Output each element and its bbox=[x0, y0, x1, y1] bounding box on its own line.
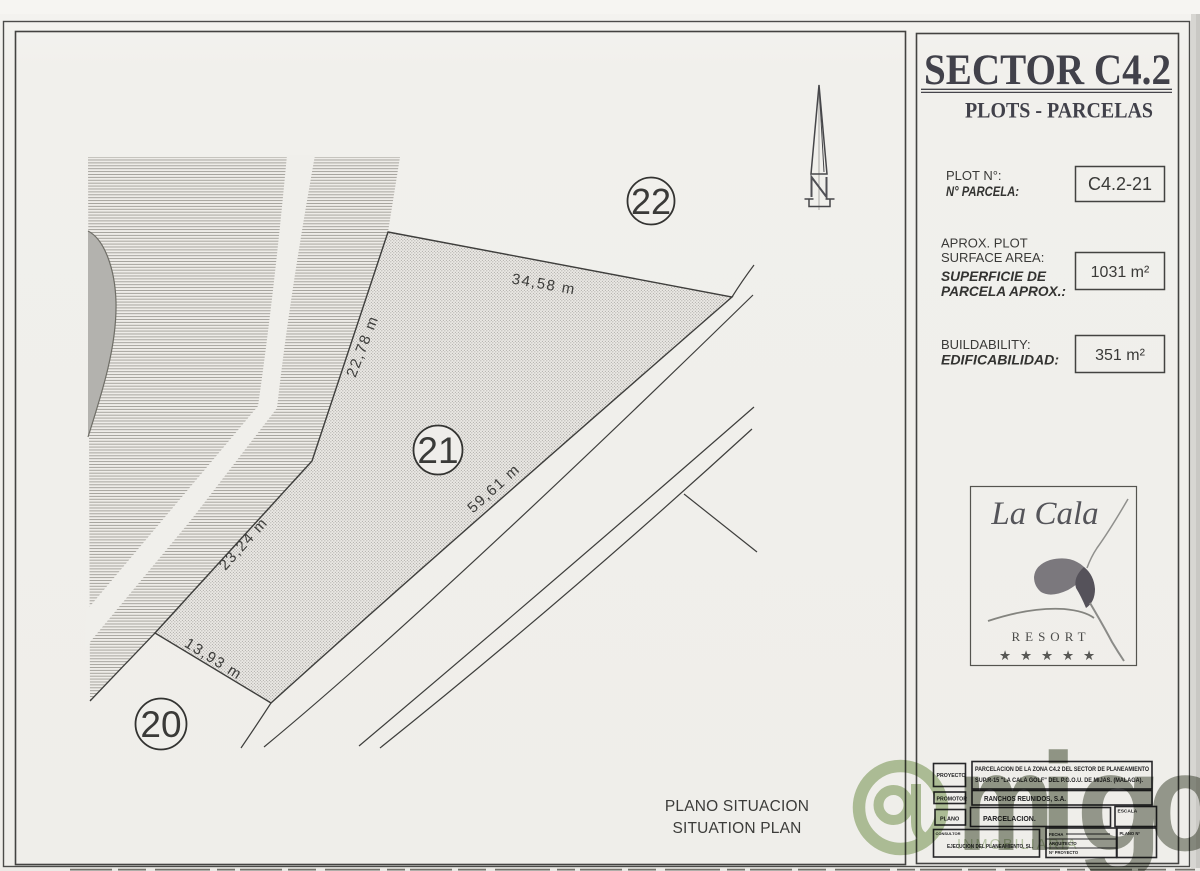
svg-text:★: ★ bbox=[1083, 648, 1095, 663]
svg-text:22: 22 bbox=[631, 181, 671, 222]
svg-text:SITUATION PLAN: SITUATION PLAN bbox=[672, 820, 801, 837]
svg-text:EDIFICABILIDAD:: EDIFICABILIDAD: bbox=[941, 352, 1059, 368]
svg-text:PARCELA APROX.:: PARCELA APROX.: bbox=[941, 283, 1066, 299]
svg-text:APROX. PLOT: APROX. PLOT bbox=[941, 236, 1028, 251]
svg-text:C4.2-21: C4.2-21 bbox=[1088, 174, 1152, 194]
svg-text:1031 m²: 1031 m² bbox=[1091, 264, 1150, 281]
svg-text:o: o bbox=[1148, 725, 1200, 871]
svg-text:PLOT N°:: PLOT N°: bbox=[946, 168, 1002, 183]
svg-text:PLOTS - PARCELAS: PLOTS - PARCELAS bbox=[965, 98, 1153, 123]
svg-text:SUPERFICIE DE: SUPERFICIE DE bbox=[941, 268, 1047, 284]
svg-text:★: ★ bbox=[1062, 648, 1074, 663]
svg-text:SECTOR C4.2: SECTOR C4.2 bbox=[924, 47, 1171, 94]
svg-text:★: ★ bbox=[999, 648, 1011, 663]
svg-text:351 m²: 351 m² bbox=[1095, 347, 1145, 364]
svg-text:★: ★ bbox=[1020, 648, 1032, 663]
svg-text:21: 21 bbox=[417, 430, 458, 471]
svg-text:SURFACE AREA:: SURFACE AREA: bbox=[941, 250, 1044, 265]
svg-text:BUILDABILITY:: BUILDABILITY: bbox=[941, 337, 1031, 352]
svg-text:★: ★ bbox=[1041, 648, 1053, 663]
svg-text:PLANO SITUACION: PLANO SITUACION bbox=[665, 798, 809, 815]
svg-text:La Cala: La Cala bbox=[990, 496, 1098, 532]
svg-text:N° PARCELA:: N° PARCELA: bbox=[946, 184, 1019, 199]
svg-text:RESORT: RESORT bbox=[1011, 629, 1090, 644]
svg-text:i: i bbox=[1039, 725, 1078, 871]
svg-text:20: 20 bbox=[140, 704, 181, 745]
